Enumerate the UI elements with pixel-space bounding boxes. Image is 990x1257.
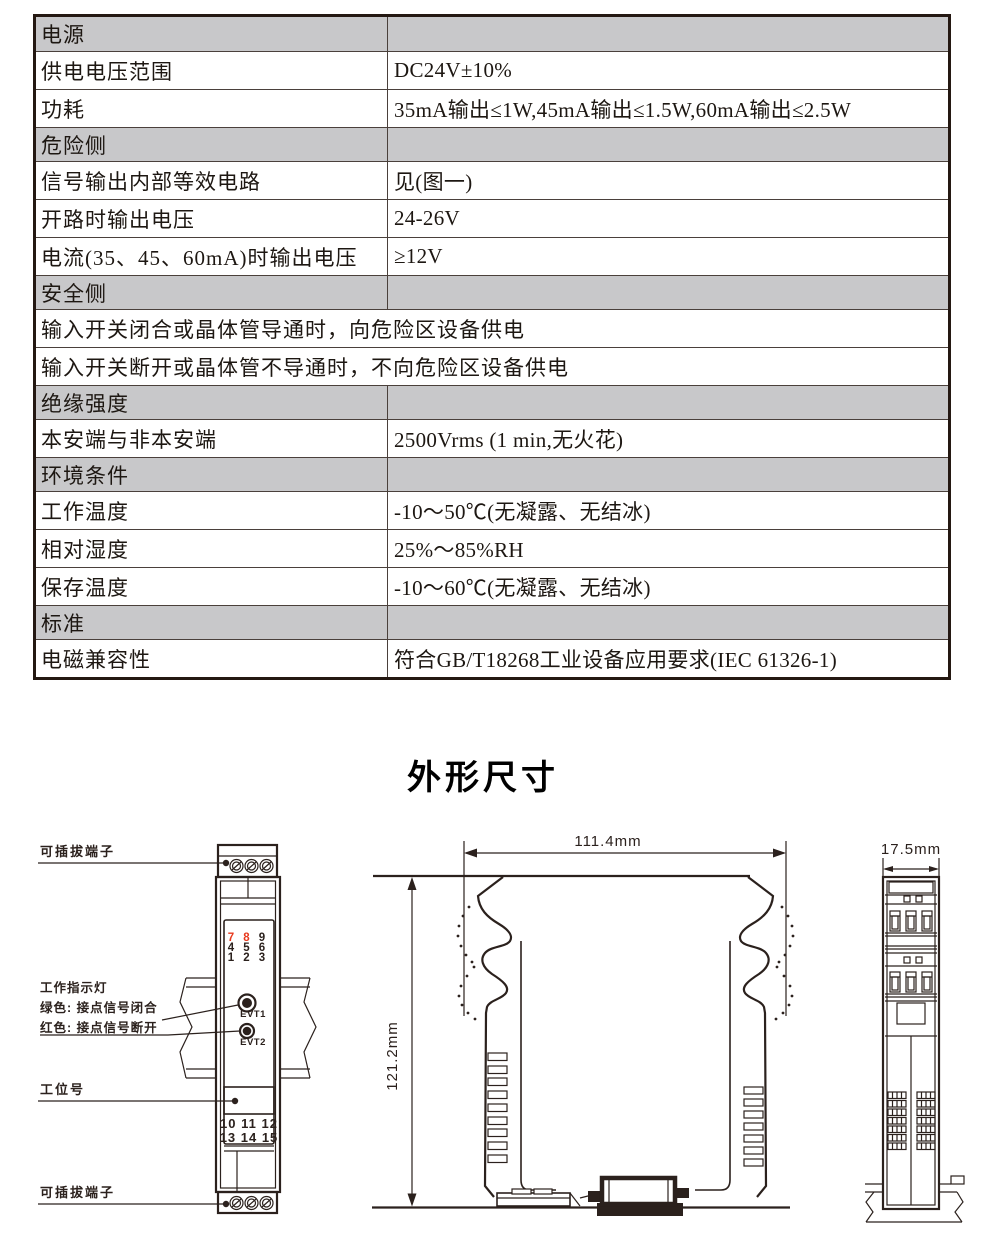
housing-profile-right — [695, 877, 794, 1197]
row-label: 供电电压范围 — [36, 52, 388, 89]
section-header: 电源 — [36, 17, 388, 51]
row-value: 2500Vrms (1 min,无火花) — [388, 420, 948, 457]
terminal-slots-top — [890, 911, 932, 931]
table-row: 电源 — [36, 17, 948, 51]
row-fulltext: 输入开关闭合或晶体管导通时，向危险区设备供电 — [36, 310, 948, 347]
station-tag: 10 11 12 13 14 15 — [220, 1087, 279, 1145]
row-value: -10～60℃(无凝露、无结冰) — [388, 568, 948, 605]
vent-slats-left — [488, 1053, 507, 1163]
row-label: 本安端与非本安端 — [36, 420, 388, 457]
end-view-body — [883, 877, 939, 1209]
row-fulltext: 输入开关断开或晶体管不导通时，不向危险区设备供电 — [36, 348, 948, 385]
row-value: 符合GB/T18268工业设备应用要求(IEC 61326-1) — [388, 640, 948, 677]
label-station: 工位号 — [40, 1082, 85, 1097]
table-row: 相对湿度25%～85%RH — [36, 529, 948, 567]
empty-cell — [388, 276, 948, 309]
terminal-number: 1 — [228, 952, 235, 964]
table-row: 工作温度-10～50℃(无凝露、无结冰) — [36, 491, 948, 529]
spec-table: 电源 供电电压范围DC24V±10% 功耗35mA输出≤1W,45mA输出≤1.… — [33, 14, 951, 680]
width-dimension: 111.4mm — [464, 833, 786, 1016]
terminal-number: 3 — [259, 952, 265, 964]
terminal-dotted-outline — [457, 906, 477, 1021]
table-row: 环境条件 — [36, 457, 948, 491]
empty-cell — [388, 458, 948, 491]
row-value: -10～50℃(无凝露、无结冰) — [388, 492, 948, 529]
height-dimension-label: 121.2mm — [384, 1021, 401, 1091]
terminal-number: 2 — [243, 952, 249, 964]
page-title: 外形尺寸 — [0, 750, 966, 799]
row-label: 工作温度 — [36, 492, 388, 529]
row-label: 电流(35、45、60mA)时输出电压 — [36, 238, 388, 275]
table-row: 信号输出内部等效电路见(图一) — [36, 161, 948, 199]
row-label: 电磁兼容性 — [36, 640, 388, 677]
table-row: 电流(35、45、60mA)时输出电压≥12V — [36, 237, 948, 275]
datasheet-page: 电源 供电电压范围DC24V±10% 功耗35mA输出≤1W,45mA输出≤1.… — [0, 0, 990, 1257]
bottom-terminal-numbers: 10 11 12 — [220, 1116, 278, 1131]
row-label: 相对湿度 — [36, 530, 388, 567]
end-view: 17.5mm — [865, 841, 964, 1222]
label-indicator-title: 工作指示灯 — [40, 980, 108, 995]
vent-slats-right — [744, 1087, 763, 1166]
width-dimension-label: 111.4mm — [574, 833, 641, 850]
row-value: ≥12V — [388, 238, 948, 275]
table-row: 输入开关断开或晶体管不导通时，不向危险区设备供电 — [36, 347, 948, 385]
terminal-screws-top — [230, 860, 273, 873]
front-view: 7 8 9 4 5 6 1 2 3 EVT1 EVT2 — [38, 844, 316, 1213]
outline-drawings: 7 8 9 4 5 6 1 2 3 EVT1 EVT2 — [0, 800, 990, 1257]
table-row: 输入开关闭合或晶体管导通时，向危险区设备供电 — [36, 309, 948, 347]
clip-nub-right — [676, 1188, 689, 1198]
terminal-screws-bottom — [230, 1197, 273, 1210]
vent-grid-right — [917, 1092, 935, 1150]
label-terminal-top: 可插拔端子 — [40, 844, 115, 859]
side-view: 111.4mm 121.2mm — [372, 833, 794, 1216]
leader-dot — [223, 860, 229, 866]
empty-cell — [388, 128, 948, 161]
table-row: 本安端与非本安端2500Vrms (1 min,无火花) — [36, 419, 948, 457]
terminal-number-grid: 7 8 9 4 5 6 1 2 3 — [228, 932, 265, 964]
section-header: 危险侧 — [36, 128, 388, 161]
din-clip-assembly — [372, 1178, 790, 1216]
empty-cell — [388, 386, 948, 419]
vent-grid-left — [888, 1092, 906, 1150]
row-value: DC24V±10% — [388, 52, 948, 89]
label-indicator-red: 红色: 接点信号断开 — [40, 1020, 158, 1035]
clip-latch — [602, 1178, 675, 1204]
table-row: 危险侧 — [36, 127, 948, 161]
row-label: 保存温度 — [36, 568, 388, 605]
section-header: 环境条件 — [36, 458, 388, 491]
label-terminal-bottom: 可插拔端子 — [40, 1185, 115, 1200]
table-row: 保存温度-10～60℃(无凝露、无结冰) — [36, 567, 948, 605]
table-row: 功耗35mA输出≤1W,45mA输出≤1.5W,60mA输出≤2.5W — [36, 89, 948, 127]
row-value: 24-26V — [388, 200, 948, 237]
section-header: 标准 — [36, 606, 388, 639]
row-value: 见(图一) — [388, 162, 948, 199]
height-dimension: 121.2mm — [384, 877, 417, 1207]
table-row: 供电电压范围DC24V±10% — [36, 51, 948, 89]
table-row: 绝缘强度 — [36, 385, 948, 419]
row-label: 信号输出内部等效电路 — [36, 162, 388, 199]
leader-dot — [223, 1201, 229, 1207]
table-row: 安全侧 — [36, 275, 948, 309]
depth-dimension-label: 17.5mm — [881, 841, 941, 858]
table-row: 电磁兼容性符合GB/T18268工业设备应用要求(IEC 61326-1) — [36, 639, 948, 677]
table-row: 标准 — [36, 605, 948, 639]
callout-labels: 可插拔端子 工作指示灯 绿色: 接点信号闭合 红色: 接点信号断开 工位号 可插… — [38, 844, 240, 1207]
bottom-terminal-numbers: 13 14 15 — [220, 1130, 279, 1145]
row-value: 25%～85%RH — [388, 530, 948, 567]
label-indicator-green: 绿色: 接点信号闭合 — [40, 1000, 158, 1015]
empty-cell — [388, 17, 948, 51]
section-header: 安全侧 — [36, 276, 388, 309]
clip-nub-left — [588, 1191, 601, 1202]
empty-cell — [388, 606, 948, 639]
table-row: 开路时输出电压24-26V — [36, 199, 948, 237]
section-header: 绝缘强度 — [36, 386, 388, 419]
row-label: 开路时输出电压 — [36, 200, 388, 237]
depth-dimension: 17.5mm — [881, 841, 941, 877]
status-leds: EVT1 EVT2 — [239, 995, 267, 1049]
row-value: 35mA输出≤1W,45mA输出≤1.5W,60mA输出≤2.5W — [388, 90, 948, 127]
led-evt1-label: EVT1 — [240, 1009, 266, 1020]
led-evt2-label: EVT2 — [240, 1037, 266, 1048]
row-label: 功耗 — [36, 90, 388, 127]
rail-cross-section — [865, 1176, 964, 1222]
terminal-slots-bottom — [890, 972, 932, 992]
